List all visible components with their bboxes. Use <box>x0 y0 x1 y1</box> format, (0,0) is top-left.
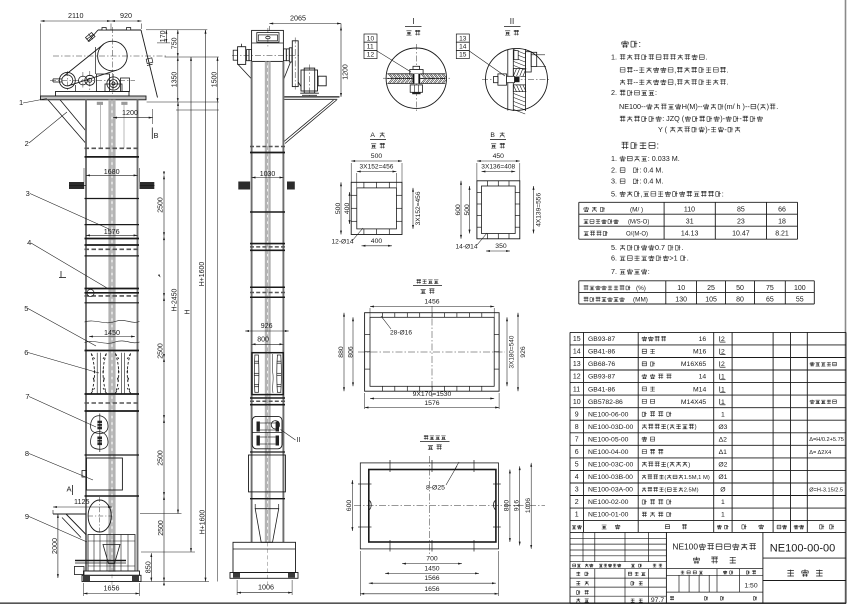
svg-text:2500: 2500 <box>158 520 165 536</box>
svg-text:.: . <box>727 78 729 87</box>
svg-text:Y (: Y ( <box>658 125 668 134</box>
svg-text:800: 800 <box>257 336 269 343</box>
svg-text:65: 65 <box>766 296 774 303</box>
svg-text:NE100: NE100 <box>672 542 698 552</box>
svg-text:1576: 1576 <box>424 400 439 407</box>
svg-text:--: -- <box>633 65 638 74</box>
svg-text:6: 6 <box>24 348 28 357</box>
svg-text:916: 916 <box>514 500 521 512</box>
svg-text:M16: M16 <box>693 349 706 356</box>
svg-text:1: 1 <box>575 512 579 519</box>
svg-text:4: 4 <box>27 238 31 247</box>
svg-text:97.7: 97.7 <box>651 597 664 604</box>
svg-text::: : <box>657 141 660 151</box>
svg-text:14-Ø14: 14-Ø14 <box>456 244 478 251</box>
svg-text:6: 6 <box>575 449 579 456</box>
svg-text:(: ( <box>664 487 666 493</box>
svg-text:GB5782-86: GB5782-86 <box>588 399 623 406</box>
svg-text:1450: 1450 <box>424 565 439 572</box>
svg-text:500: 500 <box>371 153 383 160</box>
svg-text:926: 926 <box>261 323 273 330</box>
svg-text:2500: 2500 <box>158 343 165 359</box>
svg-text:2.: 2. <box>611 166 617 175</box>
svg-text:14.13: 14.13 <box>681 231 699 238</box>
svg-text:1680: 1680 <box>104 167 120 176</box>
svg-text:0.7: 0.7 <box>655 243 665 252</box>
svg-text:5.: 5. <box>611 243 617 252</box>
svg-text:: 0.033 M.: : 0.033 M. <box>648 154 680 163</box>
svg-text:NE100-04-00: NE100-04-00 <box>588 449 629 456</box>
svg-text:NE100-03B-00: NE100-03B-00 <box>588 474 633 481</box>
svg-text:O/(M-O): O/(M-O) <box>626 232 648 238</box>
svg-text:(MM): (MM) <box>633 296 648 303</box>
svg-text:NE100--: NE100-- <box>619 102 646 111</box>
svg-text:2500: 2500 <box>158 197 165 213</box>
svg-text:NE100-00-00: NE100-00-00 <box>770 543 835 555</box>
svg-text:7: 7 <box>25 392 29 401</box>
svg-text:800: 800 <box>504 500 511 512</box>
svg-text:5: 5 <box>24 304 28 313</box>
svg-text:(%): (%) <box>636 285 646 292</box>
svg-text:3X152=456: 3X152=456 <box>360 164 394 171</box>
svg-text:.: . <box>687 254 689 263</box>
svg-text:1.5M,1 M): 1.5M,1 M) <box>684 475 710 481</box>
svg-text:--: -- <box>633 78 638 87</box>
svg-text:100: 100 <box>794 285 806 292</box>
svg-text:1656: 1656 <box>104 584 120 593</box>
svg-text:105: 105 <box>705 296 717 303</box>
svg-text:400: 400 <box>344 203 351 215</box>
svg-text:8: 8 <box>25 449 29 458</box>
svg-text:GB41-86: GB41-86 <box>588 386 615 393</box>
svg-text:500: 500 <box>335 203 342 215</box>
svg-text:H+1600: H+1600 <box>199 510 206 535</box>
svg-text:13: 13 <box>573 361 581 368</box>
svg-text:14: 14 <box>573 349 581 356</box>
svg-text:GB93-87: GB93-87 <box>588 374 615 381</box>
svg-text:GB68-76: GB68-76 <box>588 361 615 368</box>
svg-text:Δ= Δ2X4: Δ= Δ2X4 <box>809 450 831 456</box>
svg-text:12-Ø14: 12-Ø14 <box>332 239 354 246</box>
svg-text:(m/ h )--: (m/ h )-- <box>724 102 750 111</box>
svg-text:1576: 1576 <box>104 227 120 236</box>
svg-text:18: 18 <box>778 219 786 226</box>
svg-text:Ø3: Ø3 <box>718 424 727 431</box>
svg-text:11: 11 <box>367 44 374 51</box>
svg-text:110: 110 <box>684 207 695 214</box>
svg-text:1656: 1656 <box>424 586 439 593</box>
svg-text:1.: 1. <box>611 154 617 163</box>
svg-text:12: 12 <box>573 374 581 381</box>
svg-text:.: . <box>681 243 683 252</box>
svg-text:8: 8 <box>575 424 579 431</box>
svg-text:920: 920 <box>120 11 132 20</box>
svg-text:Ø=H-3.15/2.5: Ø=H-3.15/2.5 <box>809 487 843 493</box>
svg-text:>1: >1 <box>669 254 677 263</box>
svg-text:H(M)--: H(M)-- <box>682 102 703 111</box>
svg-text:1456: 1456 <box>424 299 439 306</box>
svg-text:M14X45: M14X45 <box>681 399 707 406</box>
svg-text:): ) <box>688 461 690 468</box>
svg-text:3.: 3. <box>611 177 617 186</box>
svg-text:85: 85 <box>737 207 745 214</box>
svg-text:B: B <box>490 132 495 139</box>
svg-text:500: 500 <box>464 204 471 216</box>
svg-text:600: 600 <box>455 204 462 216</box>
svg-text:13: 13 <box>459 35 467 42</box>
svg-text:750: 750 <box>172 37 179 49</box>
svg-text:4X139=556: 4X139=556 <box>535 193 542 227</box>
svg-text:1: 1 <box>721 499 725 506</box>
svg-text:Δ=H/0.2+5.75: Δ=H/0.2+5.75 <box>809 437 844 443</box>
svg-text::: : <box>639 39 642 49</box>
svg-text:H: H <box>185 309 192 314</box>
svg-text:400: 400 <box>371 238 383 245</box>
svg-text:16: 16 <box>699 336 707 343</box>
svg-text:2500: 2500 <box>158 450 165 466</box>
svg-text:1200: 1200 <box>342 64 349 80</box>
svg-text:10: 10 <box>677 285 685 292</box>
svg-text:2: 2 <box>25 139 29 148</box>
svg-text:)-: )- <box>705 125 710 134</box>
svg-text:15: 15 <box>459 52 467 59</box>
svg-text:NE100-02-00: NE100-02-00 <box>588 499 629 506</box>
svg-text:5: 5 <box>575 462 579 469</box>
svg-text:NE100-06-00: NE100-06-00 <box>588 411 629 418</box>
svg-text:Δ2: Δ2 <box>719 436 728 443</box>
svg-text:Ø1: Ø1 <box>718 474 727 481</box>
svg-text:6.: 6. <box>611 254 617 263</box>
svg-text::: : <box>722 189 724 198</box>
svg-text:28-Ø16: 28-Ø16 <box>390 330 412 337</box>
svg-text:II: II <box>510 17 514 26</box>
svg-text::: : <box>655 88 657 97</box>
svg-text:130: 130 <box>675 296 687 303</box>
svg-text:II: II <box>297 437 301 444</box>
svg-text:Ø: Ø <box>720 487 726 494</box>
svg-text:,: , <box>674 65 676 74</box>
svg-text:66: 66 <box>778 207 786 214</box>
svg-text:,: , <box>674 78 676 87</box>
svg-text:: 0.4 M.: : 0.4 M. <box>639 166 663 175</box>
svg-text:NE100-01-00: NE100-01-00 <box>588 512 629 519</box>
svg-text:(M/S-O): (M/S-O) <box>628 220 649 226</box>
svg-text:2065: 2065 <box>290 14 306 23</box>
svg-text:25: 25 <box>707 285 715 292</box>
svg-text:3: 3 <box>26 189 30 198</box>
svg-text:450: 450 <box>493 153 505 160</box>
svg-text:1450: 1450 <box>104 328 120 337</box>
svg-text:31: 31 <box>686 219 694 226</box>
svg-text:): ) <box>695 424 697 431</box>
svg-text:700: 700 <box>426 556 438 563</box>
svg-text:NE100-05-00: NE100-05-00 <box>588 436 629 443</box>
svg-text:3X136=408: 3X136=408 <box>481 164 515 171</box>
svg-text:: 0.4 M.: : 0.4 M. <box>639 177 663 186</box>
svg-text:850: 850 <box>144 561 153 573</box>
svg-text:3: 3 <box>575 487 579 494</box>
svg-text:1: 1 <box>721 411 725 418</box>
svg-text:1006: 1006 <box>258 583 274 592</box>
svg-text:H+1600: H+1600 <box>199 262 206 287</box>
svg-text:H-2450: H-2450 <box>172 288 179 311</box>
svg-text:8.21: 8.21 <box>775 231 789 238</box>
svg-text:1: 1 <box>721 512 725 519</box>
svg-text:(: ( <box>664 475 666 481</box>
svg-text:M16X65: M16X65 <box>681 361 707 368</box>
svg-text:880: 880 <box>338 346 345 358</box>
svg-text:7: 7 <box>575 436 579 443</box>
svg-text:9X170=1530: 9X170=1530 <box>413 391 452 398</box>
svg-text:A: A <box>67 485 72 494</box>
svg-text:2110: 2110 <box>68 11 83 20</box>
svg-text:1200: 1200 <box>122 108 138 117</box>
svg-text:2000: 2000 <box>50 538 59 554</box>
svg-text:75: 75 <box>766 285 774 292</box>
svg-text:23: 23 <box>737 219 745 226</box>
svg-text:1006: 1006 <box>525 498 532 513</box>
svg-text:A: A <box>370 132 375 139</box>
svg-text:GB41-86: GB41-86 <box>588 349 615 356</box>
svg-text:1125: 1125 <box>74 497 89 506</box>
svg-text:I: I <box>412 17 414 26</box>
svg-text:Ø2: Ø2 <box>718 462 727 469</box>
svg-text:3X180=540: 3X180=540 <box>509 335 516 368</box>
svg-text:10: 10 <box>573 399 581 406</box>
svg-text:10: 10 <box>367 35 375 42</box>
svg-text:3X152=456: 3X152=456 <box>415 191 422 225</box>
svg-text:)-: )- <box>720 114 725 123</box>
svg-text:4: 4 <box>575 474 579 481</box>
svg-text:170: 170 <box>160 30 167 42</box>
svg-text:B: B <box>154 131 159 140</box>
svg-text:11: 11 <box>573 386 580 393</box>
svg-text:1.: 1. <box>611 53 617 62</box>
svg-text:(M/ ): (M/ ) <box>630 207 643 214</box>
svg-text:15: 15 <box>573 336 581 343</box>
svg-text:.: . <box>705 53 707 62</box>
svg-text:5.: 5. <box>611 189 617 198</box>
svg-text:2.5M): 2.5M) <box>684 487 699 493</box>
svg-text:1566: 1566 <box>424 575 439 582</box>
svg-text:,: , <box>641 189 643 198</box>
svg-text:9: 9 <box>575 411 579 418</box>
svg-text:10.47: 10.47 <box>732 231 750 238</box>
svg-text:2.: 2. <box>611 88 617 97</box>
svg-text:14: 14 <box>699 374 707 381</box>
svg-text:600: 600 <box>346 500 353 512</box>
svg-text:55: 55 <box>796 296 804 303</box>
svg-text:.: . <box>727 65 729 74</box>
svg-text:350: 350 <box>495 243 507 250</box>
svg-text:8-Ø25: 8-Ø25 <box>426 485 445 492</box>
svg-text:1:50: 1:50 <box>744 583 757 590</box>
svg-text:14: 14 <box>459 44 467 51</box>
svg-text:.: . <box>776 102 778 111</box>
svg-text:806: 806 <box>347 346 354 358</box>
svg-text:1: 1 <box>19 98 23 107</box>
svg-text:Δ1: Δ1 <box>719 449 728 456</box>
svg-text::: : <box>648 267 650 276</box>
svg-text:1030: 1030 <box>260 171 276 178</box>
svg-text:1350: 1350 <box>172 72 179 88</box>
svg-text:7.: 7. <box>611 267 617 276</box>
svg-text:12: 12 <box>367 52 375 59</box>
svg-text:9: 9 <box>25 512 29 521</box>
svg-text:): ) <box>767 102 769 111</box>
svg-text:NE100-03C-00: NE100-03C-00 <box>588 462 634 469</box>
svg-text:NE100-03D-00: NE100-03D-00 <box>588 424 634 431</box>
svg-text:GB93-87: GB93-87 <box>588 336 615 343</box>
svg-text:2: 2 <box>575 499 579 506</box>
svg-text:80: 80 <box>736 296 744 303</box>
svg-text:50: 50 <box>736 285 744 292</box>
svg-text:: JZQ (: : JZQ ( <box>662 114 685 123</box>
svg-text:926: 926 <box>520 346 527 358</box>
svg-text:M14: M14 <box>693 386 706 393</box>
svg-text:NE100-03A-00: NE100-03A-00 <box>588 487 633 494</box>
